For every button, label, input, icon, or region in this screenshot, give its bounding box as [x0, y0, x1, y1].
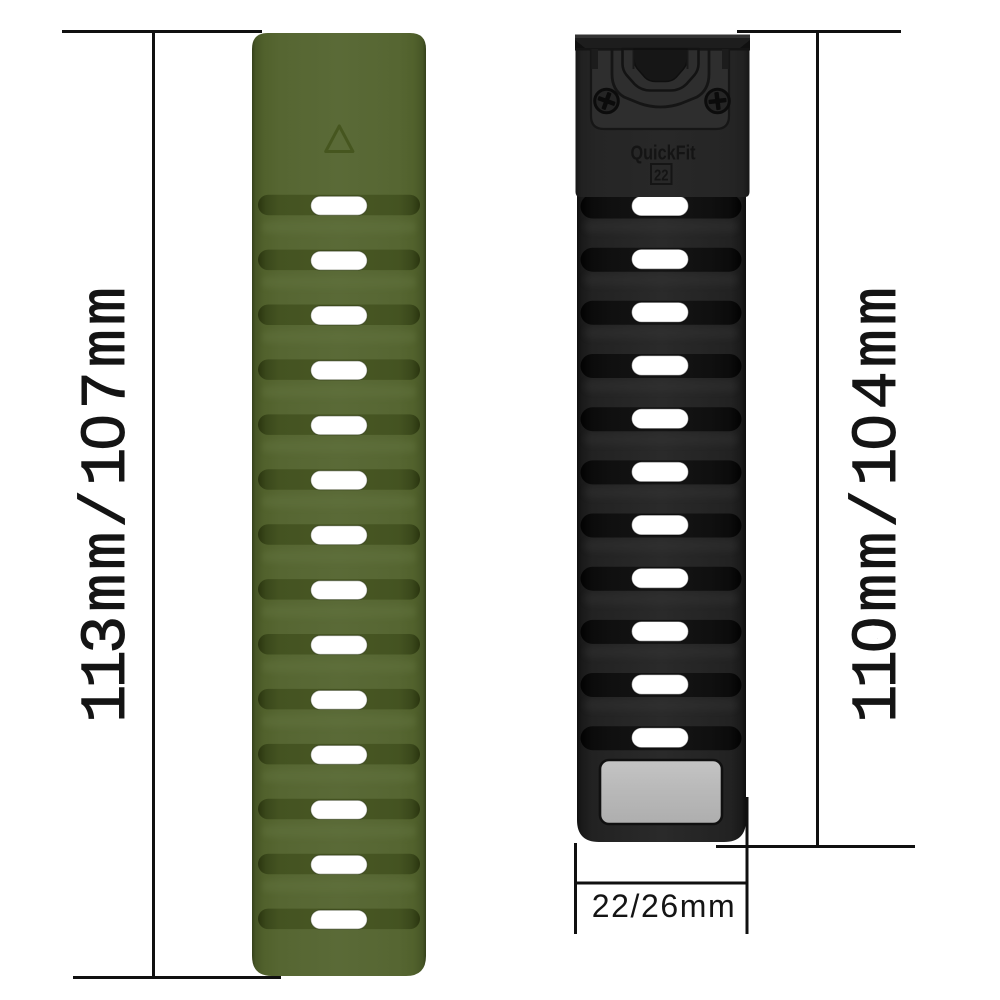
svg-text:QuickFit: QuickFit	[631, 142, 696, 165]
svg-text:110mm/104mm: 110mm/104mm	[843, 287, 915, 723]
svg-text:113mm/107mm: 113mm/107mm	[72, 287, 144, 723]
svg-text:22/26mm: 22/26mm	[592, 888, 737, 924]
svg-text:22: 22	[654, 168, 669, 185]
